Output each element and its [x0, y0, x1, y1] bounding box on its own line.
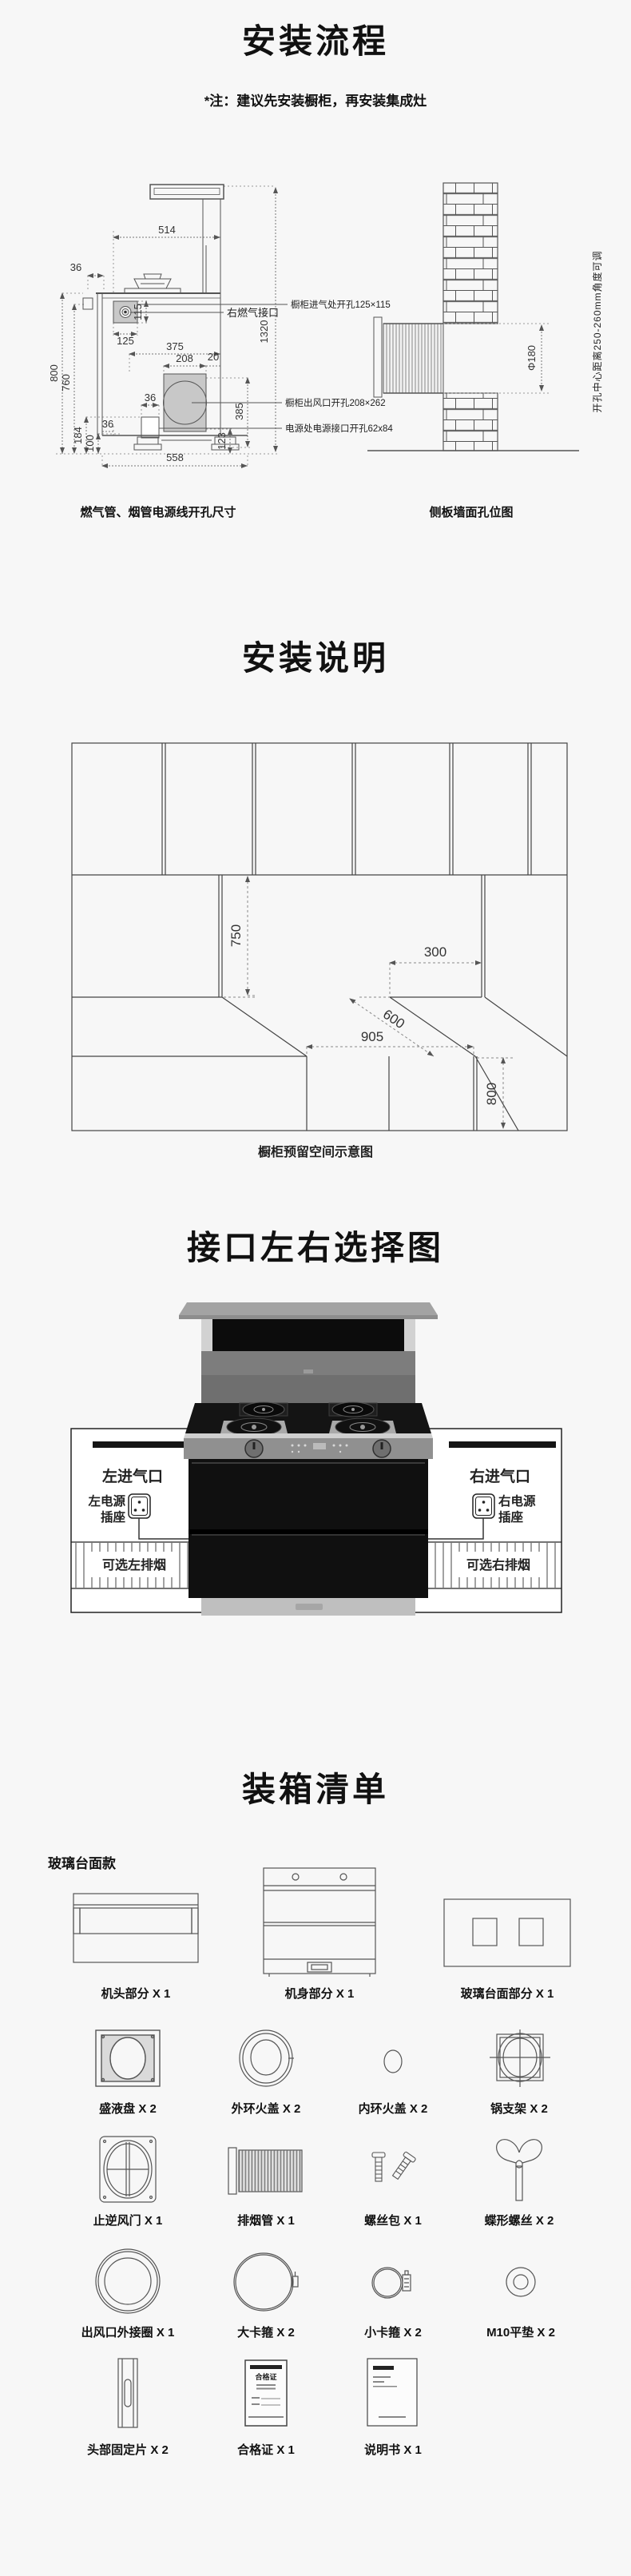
dim-750: 750	[228, 924, 244, 947]
left-socket-icon	[129, 1494, 150, 1518]
dim-125: 125	[117, 335, 134, 347]
dim-123: 123	[216, 432, 228, 450]
dim-208: 208	[176, 352, 193, 364]
corrugated-duct	[383, 324, 443, 393]
dim-184: 184	[72, 427, 84, 444]
callout-outlet: 橱柜出风口开孔208×262	[285, 397, 386, 408]
dim-760: 760	[60, 374, 72, 392]
burner-front-left	[220, 1418, 288, 1436]
left-inlet-bar	[93, 1441, 200, 1448]
dim-phi180: Φ180	[526, 345, 538, 371]
dim-375: 375	[166, 340, 184, 352]
wall-section-drawing	[367, 183, 579, 451]
dim-600: 600	[380, 1007, 407, 1032]
section2-title: 安装说明	[0, 631, 631, 680]
right-counter-block	[390, 875, 567, 1131]
dim-36-bottom: 36	[102, 418, 113, 430]
base-handle	[296, 1604, 323, 1610]
right-vent-label: 可选右排烟	[466, 1557, 530, 1572]
dim-385: 385	[233, 403, 245, 420]
right-power-label-2: 插座	[498, 1509, 524, 1525]
head-unit-icon	[72, 1887, 200, 1964]
dim-800: 800	[48, 364, 60, 382]
hole-dimension-diagram: 514 36 115 125 375 208 20 1320 385 800 7…	[24, 172, 607, 527]
right-socket-icon	[473, 1494, 494, 1518]
screw-pack-icon	[367, 2151, 419, 2189]
part-label: 说明书 X 1	[305, 2441, 481, 2458]
callout-gas: 右燃气接口	[227, 307, 279, 319]
callout-power: 电源处电源接口开孔62x84	[285, 423, 393, 434]
exhaust-pipe-icon	[228, 2143, 304, 2199]
cabinet-side-panel	[97, 293, 102, 435]
part-label: M10平垫 X 2	[433, 2324, 609, 2340]
inner-burner-cap-icon	[381, 2047, 405, 2076]
burner-back-left	[240, 1402, 288, 1417]
wall-note: 开孔中心距离250-260mm角度可调	[591, 250, 603, 412]
interface-selection-diagram: 左进气口 右进气口 左电源 插座 右电源 插座 可选左排烟 可选右排烟	[24, 1301, 607, 1620]
body-unit-icon	[260, 1866, 379, 1980]
burner-back-right	[329, 1402, 377, 1417]
left-power-label-2: 插座	[101, 1509, 126, 1525]
hood-top-plate	[150, 185, 224, 199]
certificate-icon: 合格证	[244, 2359, 288, 2427]
left-power-label-1: 左电源	[87, 1493, 125, 1509]
callout-intake: 橱柜进气处开孔125×115	[291, 299, 391, 310]
check-valve-damper-icon	[98, 2135, 157, 2204]
part-label: 机身部分 X 1	[232, 1985, 407, 2002]
pot-support-icon	[490, 2029, 550, 2087]
outer-burner-cap-icon	[237, 2029, 295, 2087]
wing-screw-icon	[492, 2137, 546, 2202]
caption-cabinet: 橱柜预留空间示意图	[258, 1144, 373, 1159]
dim-115: 115	[132, 304, 144, 320]
manual-icon	[366, 2357, 419, 2427]
control-panel	[184, 1438, 433, 1459]
integrated-stove-image	[179, 1302, 438, 1616]
variant-label: 玻璃台面款	[48, 1852, 116, 1872]
right-inlet-label: 右进气口	[469, 1467, 530, 1485]
cabinet-space-diagram: 750 300 600 905 800 橱柜预留空间示意图	[24, 695, 607, 1167]
glass-countertop-icon	[442, 1898, 572, 1968]
cabinet-outline	[72, 743, 567, 1131]
burner-front-right	[329, 1418, 396, 1436]
installation-manual-page: 安装流程 *注：建议先安装橱柜，再安装集成灶	[0, 0, 631, 2576]
duct-flange	[374, 317, 382, 397]
dim-905: 905	[361, 1029, 383, 1044]
right-power-label-1: 右电源	[498, 1493, 536, 1509]
part-label: 机头部分 X 1	[48, 1985, 224, 2002]
section4-title: 装箱清单	[0, 1763, 631, 1811]
part-label: 蝶形螺丝 X 2	[431, 2212, 607, 2228]
brick-wall-upper	[443, 183, 498, 324]
hood-screen	[212, 1319, 404, 1351]
drip-pan-icon	[93, 2028, 162, 2089]
part-label: 玻璃台面部分 X 1	[419, 1985, 595, 2002]
cooktop-burner	[125, 274, 181, 293]
certificate-title: 合格证	[255, 2372, 276, 2381]
left-vent-label: 可选左排烟	[102, 1557, 166, 1572]
dim-1320: 1320	[258, 320, 270, 344]
dim-800-cabinet: 800	[484, 1083, 499, 1105]
section1-note: *注：建议先安装橱柜，再安装集成灶	[0, 89, 631, 109]
dim-558: 558	[166, 451, 184, 463]
caption-left: 燃气管、烟管电源线开孔尺寸	[80, 505, 236, 519]
dim-300: 300	[424, 944, 446, 960]
left-inlet-label: 左进气口	[102, 1467, 163, 1485]
right-inlet-bar	[449, 1441, 556, 1448]
dim-36-mid: 36	[145, 392, 156, 403]
dim-100: 100	[84, 435, 96, 452]
section1-title: 安装流程	[0, 14, 631, 63]
small-clamp-icon	[371, 2265, 415, 2300]
dim-36-top: 36	[70, 261, 81, 273]
large-clamp-icon	[232, 2252, 300, 2312]
brick-wall-lower	[443, 393, 498, 451]
section3-title: 接口左右选择图	[0, 1221, 631, 1270]
dim-20: 20	[208, 351, 219, 363]
outlet-adapter-ring-icon	[94, 2248, 161, 2315]
m10-washer-icon	[505, 2266, 537, 2298]
dim-514: 514	[158, 224, 176, 236]
caption-right: 侧板墙面孔位图	[429, 505, 513, 519]
power-opening	[141, 417, 159, 438]
head-fixing-plate-icon	[115, 2357, 141, 2429]
wall-cabinet-dividers	[162, 743, 531, 875]
part-label: 锅支架 X 2	[431, 2100, 607, 2117]
stove-cabinet	[189, 1459, 428, 1598]
